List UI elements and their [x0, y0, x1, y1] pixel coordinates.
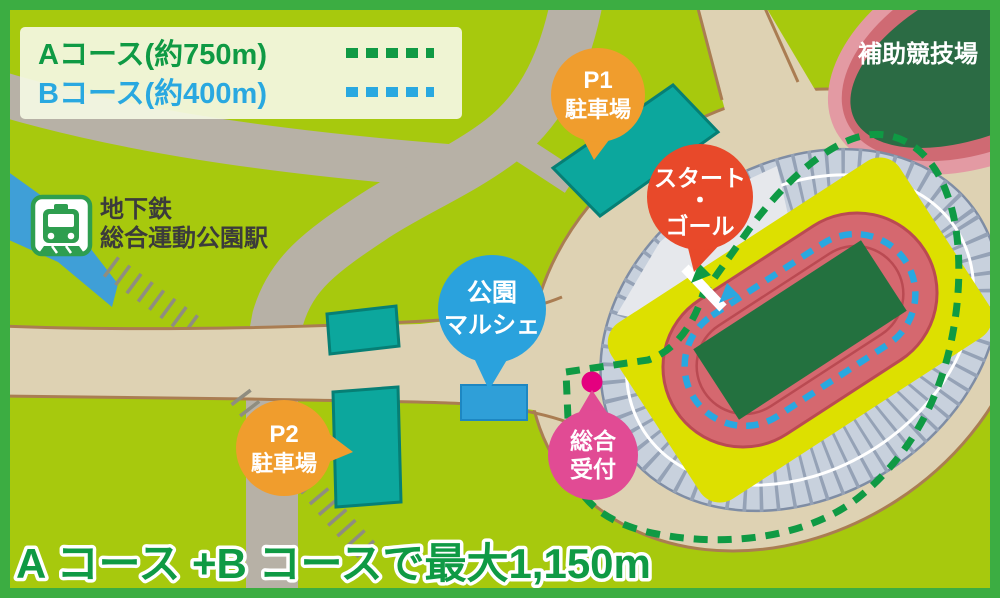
balloon-p2-circle	[236, 400, 332, 496]
reception-label-line2: 受付	[570, 456, 616, 482]
legend: Aコース(約750m) Bコース(約400m)	[20, 27, 462, 119]
station-label-line1: 地下鉄	[100, 195, 172, 223]
balloon-marche-circle	[438, 255, 546, 363]
marche-label-line1: 公園	[467, 279, 517, 307]
footer-total-distance: A コース +B コースで最大1,150m	[16, 540, 651, 587]
marche-label-line2: マルシェ	[444, 312, 540, 339]
reception-label-line1: 総合	[570, 428, 617, 454]
building-lot-small	[327, 306, 399, 354]
legend-course-b-label: Bコース(約400m)	[38, 76, 267, 110]
p1-label-line1: P1	[583, 67, 612, 94]
aux-stadium-label: 補助競技場	[857, 40, 978, 68]
balloon-p1-circle	[551, 48, 645, 142]
map-canvas: 補助競技場 P1 駐車場 スタート ・ ゴール 公園	[0, 0, 1000, 598]
balloon-reception-circle	[548, 410, 638, 500]
legend-course-a-label: Aコース(約750m)	[38, 37, 267, 71]
marche-building	[461, 385, 527, 420]
p2-label-line1: P2	[269, 421, 298, 448]
station-label-line2: 総合運動公園駅	[100, 224, 268, 252]
start-goal-label-line3: ゴール	[666, 213, 735, 239]
p1-label-line2: 駐車場	[565, 97, 631, 122]
course-map: 補助競技場 P1 駐車場 スタート ・ ゴール 公園	[0, 0, 1000, 598]
p2-label-line2: 駐車場	[251, 451, 317, 476]
reception-dot	[582, 372, 603, 393]
start-goal-label-line2: ・	[689, 187, 712, 213]
